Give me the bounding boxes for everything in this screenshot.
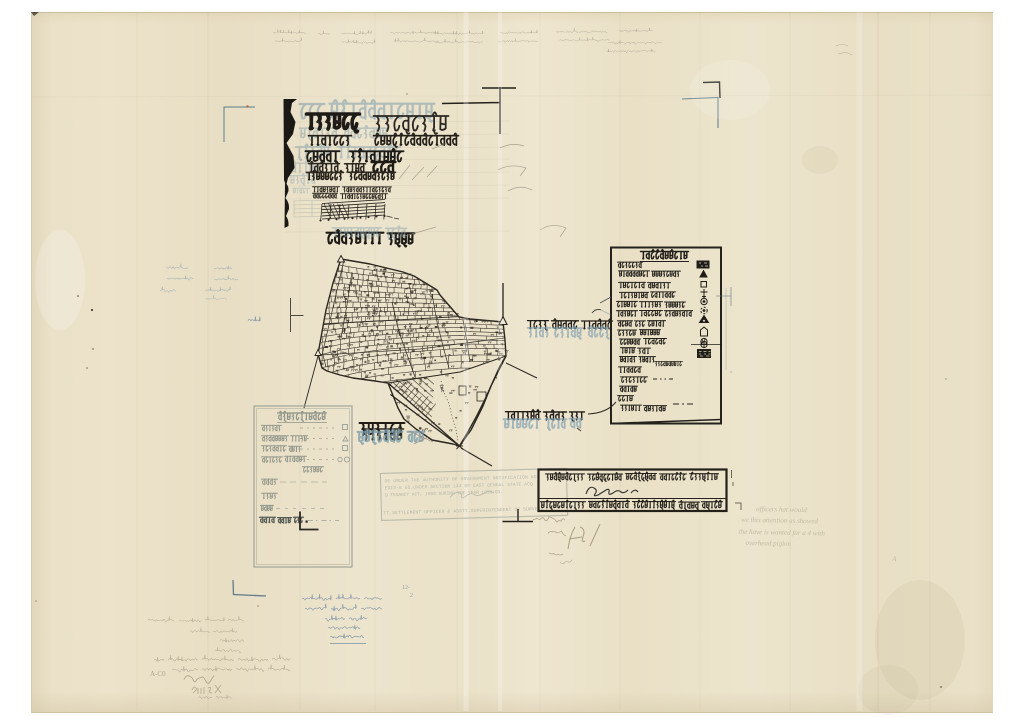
svg-text:12-: 12-	[402, 585, 410, 591]
svg-text:we this attention as showe: we this attention as showed	[741, 516, 819, 526]
svg-text:A: A	[891, 555, 897, 563]
svg-text:2: 2	[410, 593, 413, 599]
svg-text:A-C0: A-C0	[150, 670, 166, 678]
svg-text:officers hat would: officers hat would	[756, 505, 807, 514]
svg-text:overhead pigion: overhead pigion	[745, 539, 791, 548]
svg-text:the have is wanted for a: the have is wanted for a 4 with	[739, 528, 826, 538]
